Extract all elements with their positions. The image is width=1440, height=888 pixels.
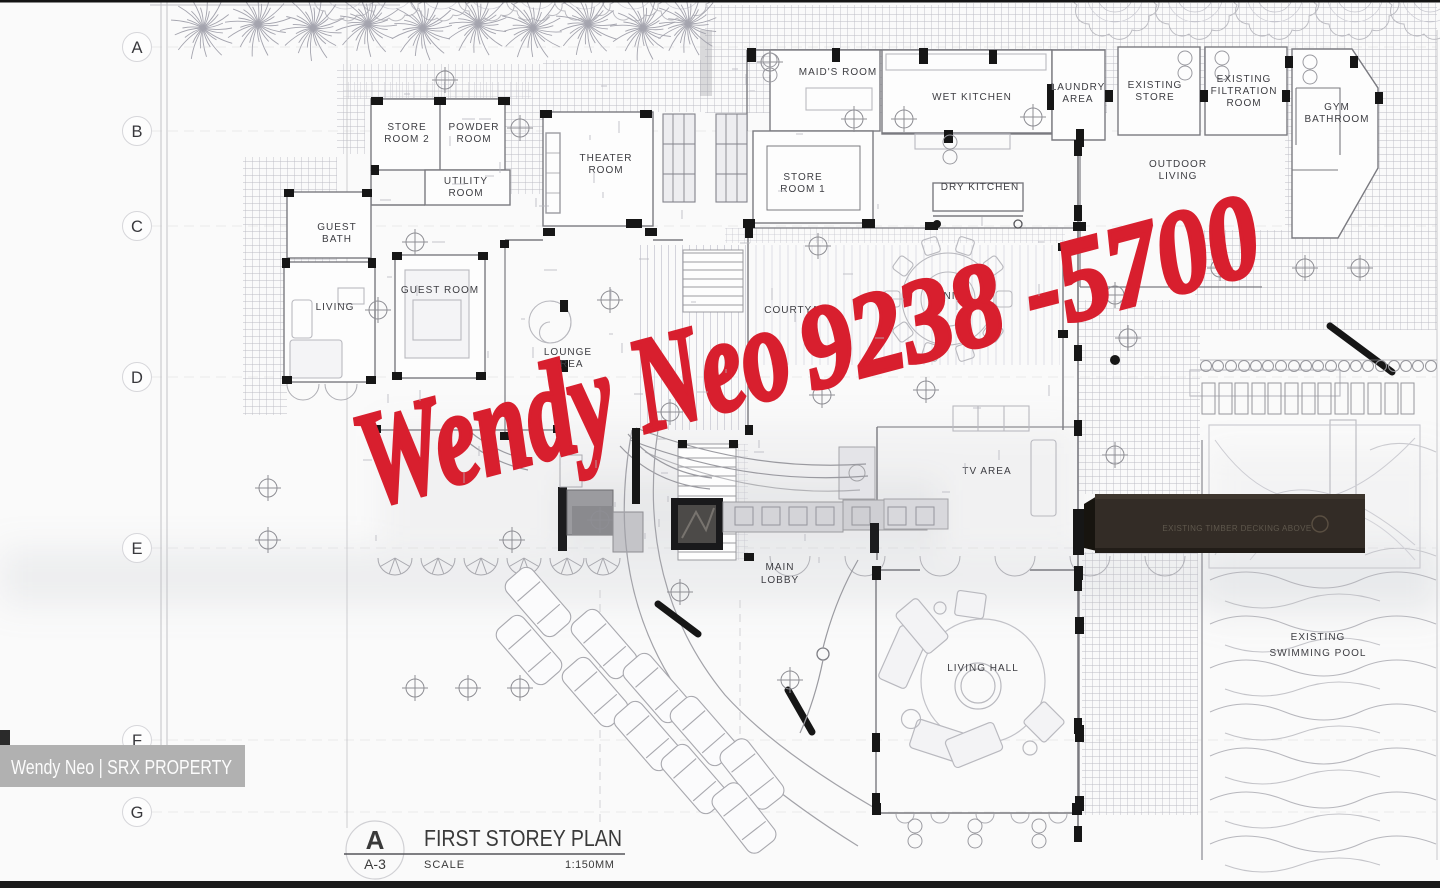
svg-text:STORE: STORE [387, 122, 426, 133]
svg-text:ROOM 2: ROOM 2 [384, 134, 429, 145]
svg-text:ROOM: ROOM [456, 134, 491, 145]
svg-text:UTILITY: UTILITY [444, 176, 488, 187]
svg-text:EXISTING: EXISTING [1217, 74, 1272, 85]
svg-text:A: A [131, 39, 142, 57]
svg-text:C: C [131, 218, 143, 236]
svg-text:E: E [131, 540, 142, 558]
svg-text:GUEST: GUEST [317, 222, 356, 233]
svg-text:LOBBY: LOBBY [761, 575, 799, 586]
svg-text:LIVING: LIVING [316, 302, 355, 313]
svg-text:LIVING HALL: LIVING HALL [947, 663, 1019, 674]
svg-text:POWDER: POWDER [449, 122, 500, 133]
svg-text:SCALE: SCALE [424, 859, 465, 871]
svg-text:THEATER: THEATER [580, 153, 633, 164]
svg-text:A: A [366, 825, 385, 855]
svg-text:EXISTING: EXISTING [1128, 80, 1183, 91]
svg-text:EXISTING TIMBER DECKING ABOVE: EXISTING TIMBER DECKING ABOVE [1162, 524, 1311, 533]
svg-text:SWIMMING POOL: SWIMMING POOL [1270, 648, 1367, 659]
svg-text:MAIN: MAIN [766, 562, 795, 573]
svg-text:B: B [131, 123, 142, 141]
svg-text:DRY KITCHEN: DRY KITCHEN [941, 182, 1019, 193]
svg-text:WET KITCHEN: WET KITCHEN [932, 92, 1012, 103]
svg-text:ROOM: ROOM [1226, 98, 1261, 109]
svg-text:EXISTING: EXISTING [1291, 632, 1346, 643]
svg-text:G: G [131, 804, 144, 822]
svg-text:AREA: AREA [1062, 94, 1093, 105]
svg-text:GYM: GYM [1324, 102, 1350, 113]
svg-text:STORE: STORE [1135, 92, 1174, 103]
svg-text:A-3: A-3 [364, 856, 386, 872]
svg-text:LAUNDRY: LAUNDRY [1051, 82, 1106, 93]
svg-text:MAID'S ROOM: MAID'S ROOM [799, 67, 877, 78]
svg-text:D: D [131, 369, 143, 387]
svg-text:FIRST STOREY PLAN: FIRST STOREY PLAN [424, 825, 622, 851]
svg-text:Wendy Neo | SRX PROPERTY: Wendy Neo | SRX PROPERTY [11, 757, 232, 779]
svg-text:STORE: STORE [783, 172, 822, 183]
svg-text:TV AREA: TV AREA [962, 466, 1011, 477]
svg-text:OUTDOOR: OUTDOOR [1149, 159, 1207, 170]
svg-text:BATHROOM: BATHROOM [1304, 114, 1369, 125]
svg-text:1:150MM: 1:150MM [565, 859, 614, 871]
svg-text:FILTRATION: FILTRATION [1211, 86, 1278, 97]
svg-text:BATH: BATH [322, 234, 352, 245]
svg-text:ROOM: ROOM [448, 188, 483, 199]
svg-text:ROOM 1: ROOM 1 [780, 184, 825, 195]
svg-text:GUEST ROOM: GUEST ROOM [401, 285, 479, 296]
